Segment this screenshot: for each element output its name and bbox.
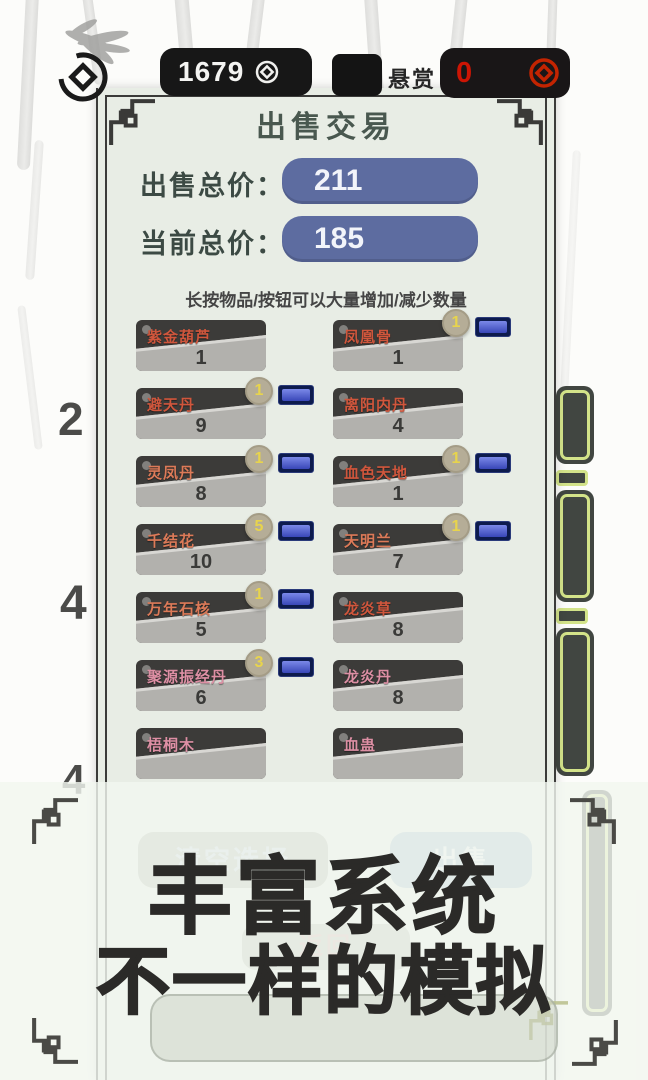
item-card-face: 血蛊 xyxy=(333,728,463,779)
item-card[interactable]: 凤凰骨 1 1 xyxy=(333,320,463,371)
count-badge: 1 xyxy=(245,377,273,405)
item-card[interactable]: 避天丹 9 1 xyxy=(136,388,266,439)
coin-amount: 1679 xyxy=(160,56,244,88)
item-name: 聚源振经丹 xyxy=(147,666,227,687)
item-quantity: 7 xyxy=(333,551,463,574)
count-badge: 3 xyxy=(245,649,273,677)
decrease-button[interactable] xyxy=(475,453,511,473)
item-name: 梧桐木 xyxy=(147,734,195,755)
item-card-face: 紫金葫芦 1 xyxy=(136,320,266,371)
decrease-button[interactable] xyxy=(475,521,511,541)
decrease-button[interactable] xyxy=(278,657,314,677)
item-card[interactable]: 灵凤丹 8 1 xyxy=(136,456,266,507)
background-number: 4 xyxy=(60,576,87,631)
decrease-button[interactable] xyxy=(278,453,314,473)
side-button-partial[interactable] xyxy=(556,628,594,776)
item-quantity: 4 xyxy=(333,415,463,438)
side-button-partial[interactable] xyxy=(556,386,594,464)
promo-banner: 丰富系统 不一样的模拟 xyxy=(0,782,648,1080)
current-total-value: 185 xyxy=(282,216,478,262)
item-name: 避天丹 xyxy=(147,394,195,415)
bounty-icon[interactable] xyxy=(332,54,382,96)
bamboo-stroke xyxy=(17,305,43,450)
side-tab-partial xyxy=(556,470,588,486)
item-card[interactable]: 龙炎丹 8 xyxy=(333,660,463,711)
item-quantity: 1 xyxy=(333,347,463,370)
long-press-hint: 长按物品/按钮可以大量增加/减少数量 xyxy=(98,286,554,311)
decrease-button[interactable] xyxy=(475,317,511,337)
count-badge: 1 xyxy=(245,445,273,473)
item-quantity: 6 xyxy=(136,687,266,710)
item-quantity: 8 xyxy=(333,687,463,710)
item-name: 灵凤丹 xyxy=(147,462,195,483)
item-name: 天明兰 xyxy=(344,530,392,551)
item-card[interactable]: 梧桐木 xyxy=(136,728,266,779)
item-quantity: 10 xyxy=(136,551,266,574)
sell-total-label: 出售总价： xyxy=(140,164,285,203)
item-card[interactable]: 千结花 10 5 xyxy=(136,524,266,575)
item-name: 凤凰骨 xyxy=(344,326,392,347)
item-card[interactable]: 天明兰 7 1 xyxy=(333,524,463,575)
current-total-label: 当前总价： xyxy=(140,222,285,261)
item-quantity: 8 xyxy=(333,619,463,642)
item-name: 血色天地 xyxy=(344,462,408,483)
promo-line-2: 不一样的模拟 xyxy=(0,922,648,1029)
item-card-face: 梧桐木 xyxy=(136,728,266,779)
item-card[interactable]: 血色天地 1 1 xyxy=(333,456,463,507)
item-card-face: 龙炎草 8 xyxy=(333,592,463,643)
item-name: 血蛊 xyxy=(344,734,376,755)
sell-total-value: 211 xyxy=(282,158,478,204)
coin-icon[interactable] xyxy=(56,50,110,104)
item-card[interactable]: 龙炎草 8 xyxy=(333,592,463,643)
decrease-button[interactable] xyxy=(278,385,314,405)
item-name: 千结花 xyxy=(147,530,195,551)
item-card-face: 龙炎丹 8 xyxy=(333,660,463,711)
item-card[interactable]: 血蛊 xyxy=(333,728,463,779)
item-name: 离阳内丹 xyxy=(344,394,408,415)
item-name: 龙炎丹 xyxy=(344,666,392,687)
bounty-diamond-icon xyxy=(528,57,560,89)
item-card-face: 离阳内丹 4 xyxy=(333,388,463,439)
item-card[interactable]: 聚源振经丹 6 3 xyxy=(136,660,266,711)
item-name: 万年石核 xyxy=(147,598,211,619)
bounty-counter[interactable]: 0 xyxy=(440,48,570,98)
decrease-button[interactable] xyxy=(278,589,314,609)
background-number: 2 xyxy=(58,392,84,446)
item-quantity: 1 xyxy=(136,347,266,370)
screen: 2 4 4 1679 悬赏 0 出售交易 出售总价： 211 xyxy=(0,0,648,1080)
item-quantity: 1 xyxy=(333,483,463,506)
side-tab-partial xyxy=(556,608,588,624)
side-button-partial[interactable] xyxy=(556,490,594,602)
item-name: 龙炎草 xyxy=(344,598,392,619)
decrease-button[interactable] xyxy=(278,521,314,541)
count-badge: 1 xyxy=(245,581,273,609)
item-card[interactable]: 离阳内丹 4 xyxy=(333,388,463,439)
count-badge: 1 xyxy=(442,445,470,473)
bounty-label: 悬赏 xyxy=(388,62,436,94)
dialog-title: 出售交易 xyxy=(98,102,554,146)
item-grid: 紫金葫芦 1 凤凰骨 1 1 避天丹 9 1 离阳内丹 4 xyxy=(136,320,463,779)
coin-small-icon xyxy=(254,59,280,85)
count-badge: 5 xyxy=(245,513,273,541)
bounty-value: 0 xyxy=(440,57,472,90)
item-quantity: 5 xyxy=(136,619,266,642)
item-quantity: 9 xyxy=(136,415,266,438)
item-quantity: 8 xyxy=(136,483,266,506)
item-name: 紫金葫芦 xyxy=(147,326,211,347)
count-badge: 1 xyxy=(442,309,470,337)
count-badge: 1 xyxy=(442,513,470,541)
coin-counter[interactable]: 1679 xyxy=(160,48,312,96)
item-card[interactable]: 紫金葫芦 1 xyxy=(136,320,266,371)
item-card[interactable]: 万年石核 5 1 xyxy=(136,592,266,643)
